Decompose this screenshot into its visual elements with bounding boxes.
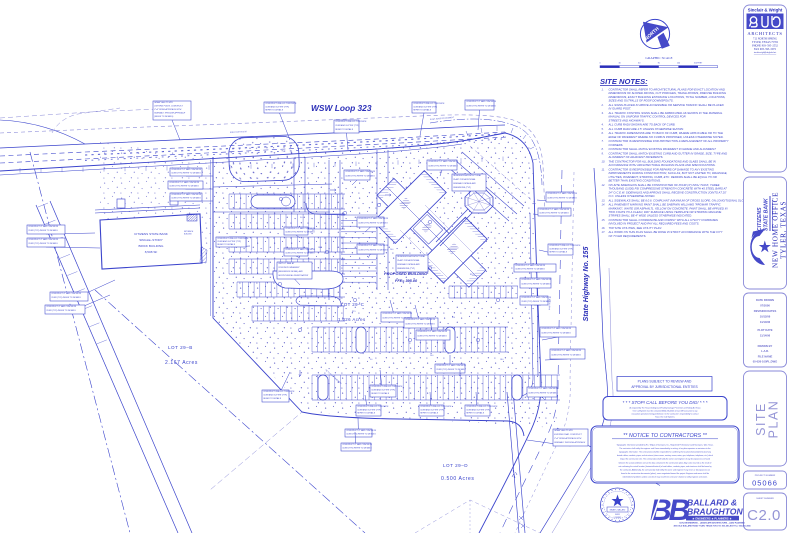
svg-text:LOT 29–D: LOT 29–D bbox=[443, 463, 468, 468]
svg-text:STATE BANK: STATE BANK bbox=[764, 197, 770, 231]
svg-text:CONSTRUCT BXA LLC CONCRETE: CONSTRUCT BXA LLC CONCRETE bbox=[263, 390, 295, 393]
svg-text:CITIZENS: CITIZENS bbox=[757, 207, 763, 231]
svg-text:sinclairwright@sbcglobal.net: sinclairwright@sbcglobal.net bbox=[754, 51, 777, 54]
svg-text:84835: 84835 bbox=[615, 514, 620, 516]
svg-text:REFER TO DETAILS: REFER TO DETAILS bbox=[357, 411, 376, 414]
svg-text:CONSTRUCT 6″ MAX CONCRETE: CONSTRUCT 6″ MAX CONCRETE bbox=[171, 193, 202, 196]
svg-text:CURB (TYP.) REFER TO DETAILS: CURB (TYP.) REFER TO DETAILS bbox=[436, 368, 466, 371]
svg-text:LOT 29–B: LOT 29–B bbox=[168, 345, 193, 350]
svg-text:SHEET NUMBER: SHEET NUMBER bbox=[756, 498, 774, 500]
svg-text:the contractor. Additionally,: the contractor. Additionally, the contra… bbox=[620, 468, 710, 471]
svg-text:2″x3″ DRIVE APPROACH WITH: 2″x3″ DRIVE APPROACH WITH bbox=[153, 108, 182, 111]
svg-text:R10: R10 bbox=[452, 317, 455, 319]
svg-text:12.: 12. bbox=[602, 183, 606, 187]
svg-text:CONSTRUCT BXA LLC CONCRETE: CONSTRUCT BXA LLC CONCRETE bbox=[265, 102, 297, 105]
svg-text:FFE= 395.00: FFE= 395.00 bbox=[395, 279, 418, 283]
svg-text:DATE DRAWN: DATE DRAWN bbox=[756, 298, 774, 302]
svg-text:CONSTRUCT 6″ MAX CONCRETE: CONSTRUCT 6″ MAX CONCRETE bbox=[551, 349, 582, 352]
svg-text:CONSTRUCT 6″ MAX CONCRETE: CONSTRUCT 6″ MAX CONCRETE bbox=[466, 100, 497, 103]
svg-text:State Highway No. 155: State Highway No. 155 bbox=[583, 247, 590, 322]
svg-text:CONSTRUCT BXA LLC CONCRETE: CONSTRUCT BXA LLC CONCRETE bbox=[466, 405, 498, 408]
svg-text:R2.5: R2.5 bbox=[470, 274, 474, 276]
svg-text:LIGHTING POLES. CONSTRUCT: LIGHTING POLES. CONSTRUCT bbox=[154, 106, 184, 108]
svg-text:6.: 6. bbox=[602, 131, 604, 135]
svg-text:CURB (TYP.) REFER TO DETAILS: CURB (TYP.) REFER TO DETAILS bbox=[28, 242, 58, 245]
svg-text:9.0: 9.0 bbox=[300, 217, 302, 219]
svg-text:CURB (TYP.) REFER TO DETAILS: CURB (TYP.) REFER TO DETAILS bbox=[51, 296, 81, 299]
svg-text:0.500 Acres: 0.500 Acres bbox=[441, 476, 475, 482]
svg-text:CURB AND GUTTER (TYP.): CURB AND GUTTER (TYP.) bbox=[413, 105, 437, 108]
svg-text:OF TYLER REQUIREMENTS.: OF TYLER REQUIREMENTS. bbox=[609, 234, 647, 238]
svg-text:150 FEET: 150 FEET bbox=[694, 63, 703, 65]
svg-text:9.0: 9.0 bbox=[370, 359, 372, 361]
svg-text:CURB (TYP.) REFER TO DETAILS: CURB (TYP.) REFER TO DETAILS bbox=[541, 331, 571, 334]
svg-text:PLANT FOR ADDITIONAL: PLANT FOR ADDITIONAL bbox=[453, 178, 475, 181]
svg-text:CURB (TYP.) REFER TO DETAILS: CURB (TYP.) REFER TO DETAILS bbox=[417, 334, 447, 337]
svg-text:CURB AND GUTTER (TYP.): CURB AND GUTTER (TYP.) bbox=[335, 124, 359, 127]
svg-text:found in the construction docu: found in the construction documents (pla… bbox=[621, 472, 709, 475]
svg-text:CONSTRUCT BXA LLC CONCRETE: CONSTRUCT BXA LLC CONCRETE bbox=[549, 244, 581, 247]
svg-text:REFER TO DETAILS: REFER TO DETAILS bbox=[549, 250, 568, 253]
svg-text:REFERENCE ARCHITECTURAL: REFERENCE ARCHITECTURAL bbox=[453, 174, 481, 177]
svg-text:EXIST R.O.W.: EXIST R.O.W. bbox=[549, 298, 551, 310]
svg-text:CURB (TYP.) REFER TO DETAILS: CURB (TYP.) REFER TO DETAILS bbox=[358, 221, 388, 224]
svg-text:Texas One Call Systems.: Texas One Call Systems. bbox=[655, 416, 676, 419]
svg-text:CONSTRUCT BXA LLC CONCRETE: CONSTRUCT BXA LLC CONCRETE bbox=[335, 120, 367, 123]
svg-text:L.A.R.: L.A.R. bbox=[761, 349, 769, 353]
svg-text:13.: 13. bbox=[602, 198, 606, 202]
svg-text:CURB (TYP.) REFER TO DETAILS: CURB (TYP.) REFER TO DETAILS bbox=[547, 196, 577, 199]
svg-text:CURB (TYP.) REFER TO DETAILS: CURB (TYP.) REFER TO DETAILS bbox=[515, 267, 545, 270]
svg-text:CURB AND GUTTER (TYP.): CURB AND GUTTER (TYP.) bbox=[217, 240, 241, 243]
svg-text:CURB (TYP.) REFER TO DETAILS: CURB (TYP.) REFER TO DETAILS bbox=[46, 309, 76, 312]
svg-text:11.: 11. bbox=[602, 167, 606, 171]
svg-text:CITIZENS STATE BANK: CITIZENS STATE BANK bbox=[134, 232, 169, 236]
svg-text:8,508 SF: 8,508 SF bbox=[145, 250, 158, 254]
svg-text:DIMENSIONS (TYP.): DIMENSIONS (TYP.) bbox=[453, 187, 471, 189]
svg-text:CURB (TYP.) REFER TO DETAILS: CURB (TYP.) REFER TO DETAILS bbox=[521, 282, 551, 285]
svg-text:CONSTRUCT 6″ MAX CONCRETE: CONSTRUCT 6″ MAX CONCRETE bbox=[539, 208, 570, 211]
svg-text:CURB (TYP.) REFER TO DETAILS: CURB (TYP.) REFER TO DETAILS bbox=[285, 251, 315, 254]
svg-text:1.: 1. bbox=[602, 88, 604, 92]
svg-text:CONSTRUCT 6″ MAX CONCRETE: CONSTRUCT 6″ MAX CONCRETE bbox=[515, 264, 546, 267]
svg-text:10/12/06: 10/12/06 bbox=[760, 315, 771, 319]
svg-text:CONCRETE PAVEMENT: CONCRETE PAVEMENT bbox=[278, 266, 300, 269]
svg-text:R2.5: R2.5 bbox=[352, 311, 356, 313]
svg-text:0: 0 bbox=[599, 63, 600, 65]
svg-text:CONSTRUCT 6″ MAX CONCRETE: CONSTRUCT 6″ MAX CONCRETE bbox=[358, 217, 389, 220]
svg-text:11/14/06: 11/14/06 bbox=[760, 320, 771, 324]
svg-text:LICENSED: LICENSED bbox=[614, 517, 622, 519]
svg-text:CONSTRUCT 6″ MAX CONCRETE: CONSTRUCT 6″ MAX CONCRETE bbox=[521, 296, 552, 299]
svg-text:SINGLE–STORY: SINGLE–STORY bbox=[139, 238, 163, 242]
svg-text:The contractor shall notify th: The contractor shall notify the engineer… bbox=[619, 447, 710, 450]
svg-text:CURB AND GUTTER (TYP.): CURB AND GUTTER (TYP.) bbox=[466, 408, 490, 411]
svg-text:CONSTRUCT 6″ MAX CONCRETE: CONSTRUCT 6″ MAX CONCRETE bbox=[28, 238, 59, 241]
svg-text:DRAWN BY: DRAWN BY bbox=[758, 344, 773, 348]
svg-text:** NOTICE TO CONTRACTORS: ** NOTICE TO CONTRACTORS ** bbox=[623, 433, 708, 439]
svg-text:9.0: 9.0 bbox=[312, 230, 314, 232]
svg-text:CONSTRUCT 6″ MAX CONCRETE: CONSTRUCT 6″ MAX CONCRETE bbox=[46, 305, 77, 308]
svg-text:30: 30 bbox=[619, 63, 621, 65]
svg-text:FAX 903–595–5972: FAX 903–595–5972 bbox=[754, 48, 777, 51]
svg-text:impact the construction site.: impact the construction site. The contra… bbox=[620, 458, 710, 461]
svg-text:BRICK BUILDING: BRICK BUILDING bbox=[139, 244, 165, 248]
svg-text:CONSTRUCT 6″ MAX CONCRETE: CONSTRUCT 6″ MAX CONCRETE bbox=[528, 387, 559, 390]
svg-text:15.: 15. bbox=[602, 218, 606, 222]
svg-text:EXISTING ROAD. CONSTRUCT: EXISTING ROAD. CONSTRUCT bbox=[554, 433, 583, 436]
svg-text:CONSTRUCT 6″ MAX CONCRETE: CONSTRUCT 6″ MAX CONCRETE bbox=[169, 181, 200, 184]
svg-text:CURB (TYP.) REFER TO DETAILS: CURB (TYP.) REFER TO DETAILS bbox=[169, 184, 199, 187]
svg-text:CURB (TYP.) REFER TO DETAILS: CURB (TYP.) REFER TO DETAILS bbox=[345, 174, 375, 177]
svg-text:CONSTRUCT 6″ MAX CONCRETE: CONSTRUCT 6″ MAX CONCRETE bbox=[171, 168, 202, 171]
svg-text:18.0: 18.0 bbox=[500, 359, 503, 361]
svg-text:SITE NOTES:: SITE NOTES: bbox=[600, 77, 648, 86]
svg-text:16.: 16. bbox=[602, 226, 606, 230]
svg-text:CURB (TYP.) REFER TO DETAILS: CURB (TYP.) REFER TO DETAILS bbox=[358, 248, 388, 251]
svg-text:2″x3″ DRIVE APPROACH WITH: 2″x3″ DRIVE APPROACH WITH bbox=[553, 437, 582, 440]
svg-text:3.: 3. bbox=[602, 111, 604, 115]
svg-text:Sinclair & Wright: Sinclair & Wright bbox=[748, 8, 783, 13]
svg-text:14.: 14. bbox=[602, 203, 606, 207]
svg-text:07/2006: 07/2006 bbox=[760, 304, 770, 308]
svg-text:CURB (TYP.) REFER TO DETAILS: CURB (TYP.) REFER TO DETAILS bbox=[28, 229, 58, 232]
svg-text:Topographic information provid: Topographic information provided by R.L.… bbox=[617, 444, 714, 447]
svg-text:LOT 29–C: LOT 29–C bbox=[341, 302, 364, 307]
svg-text:CONSTRUCT 6″ MAX CONCRETE: CONSTRUCT 6″ MAX CONCRETE bbox=[521, 278, 552, 281]
svg-text:05-026-100PL.DWG: 05-026-100PL.DWG bbox=[753, 360, 778, 364]
svg-text:GEOTECHNICAL INVESTIGATION: GEOTECHNICAL INVESTIGATION bbox=[278, 274, 309, 277]
svg-text:CONSTRUCT 6″ MAX CONCRETE: CONSTRUCT 6″ MAX CONCRETE bbox=[358, 244, 389, 247]
svg-text:(REFERENCE DETAIL) AND: (REFERENCE DETAIL) AND bbox=[278, 270, 303, 273]
svg-text:★ ENGINEERS ★ PLANNERS ★: ★ ENGINEERS ★ PLANNERS ★ bbox=[692, 516, 732, 520]
svg-text:2.167 Acres: 2.167 Acres bbox=[165, 360, 198, 366]
svg-text:BRIAN K. BALLARD: BRIAN K. BALLARD bbox=[610, 509, 626, 512]
svg-text:topographic information. The: topographic information. The contractor(… bbox=[619, 451, 711, 454]
svg-text:60: 60 bbox=[638, 63, 640, 65]
svg-text:REFER TO DETAILS: REFER TO DETAILS bbox=[466, 411, 485, 414]
svg-text:NEW HOME OFFICE: NEW HOME OFFICE bbox=[772, 192, 780, 268]
svg-text:CURB (TYP.) REFER TO DETAILS: CURB (TYP.) REFER TO DETAILS bbox=[528, 391, 558, 394]
svg-text:REFER TO DETAILS: REFER TO DETAILS bbox=[420, 411, 439, 414]
svg-text:90: 90 bbox=[658, 63, 660, 65]
svg-text:CONSTRUCT BXA LLC CONCRETE: CONSTRUCT BXA LLC CONCRETE bbox=[420, 405, 452, 408]
svg-text:SET BENCH: SET BENCH bbox=[184, 231, 194, 233]
svg-text:CONSTRUCT 6″ MAX CONCRETE: CONSTRUCT 6″ MAX CONCRETE bbox=[382, 312, 413, 315]
svg-text:CONSTRUCT 6″ MAX CONCRETE: CONSTRUCT 6″ MAX CONCRETE bbox=[405, 318, 436, 321]
svg-text:CONSTRUCT BXA LLC CONCRETE: CONSTRUCT BXA LLC CONCRETE bbox=[357, 405, 389, 408]
svg-text:TYLER, TEXAS: TYLER, TEXAS bbox=[780, 201, 788, 259]
svg-text:10.: 10. bbox=[602, 159, 606, 163]
svg-text:9.: 9. bbox=[602, 151, 604, 155]
svg-text:CONSTRUCT 6″ MAX CONCRETE: CONSTRUCT 6″ MAX CONCRETE bbox=[417, 330, 448, 333]
svg-text:GREAT LAG TO SITE: GREAT LAG TO SITE bbox=[154, 101, 173, 104]
svg-text:excavation operations being pe: excavation operations being performed, i… bbox=[631, 413, 699, 416]
svg-text:CONSTRUCT 6″ MAX CONCRETE: CONSTRUCT 6″ MAX CONCRETE bbox=[51, 292, 82, 295]
svg-text:indemnified of problems and/or: indemnified of problems and/or cost whic… bbox=[622, 475, 708, 478]
svg-text:CONSTRUCT 6″ MAX CONCRETE: CONSTRUCT 6″ MAX CONCRETE bbox=[436, 364, 467, 367]
svg-text:CURB (TYP.) REFER TO DETAILS: CURB (TYP.) REFER TO DETAILS bbox=[346, 432, 376, 435]
svg-text:5.: 5. bbox=[602, 127, 604, 131]
svg-text:CONSTRUCT BXA LLC CONCRETE: CONSTRUCT BXA LLC CONCRETE bbox=[371, 385, 403, 388]
svg-text:CURB AND GUTTER (TYP.): CURB AND GUTTER (TYP.) bbox=[420, 408, 444, 411]
svg-text:One Call System must be contac: One Call System must be contacted (800) … bbox=[633, 410, 698, 413]
svg-text:CIVIL ENGINEERING – LANDSCAPE: CIVIL ENGINEERING – LANDSCAPE ARCHITECTU… bbox=[679, 521, 745, 524]
svg-text:CONSTRUCT 6″ MAX CONCRETE: CONSTRUCT 6″ MAX CONCRETE bbox=[547, 192, 578, 195]
svg-text:24.0: 24.0 bbox=[430, 355, 433, 357]
svg-text:GREAT LAG TO SITE: GREAT LAG TO SITE bbox=[554, 429, 573, 432]
svg-text:CURB (TYP.) REFER TO DETAILS: CURB (TYP.) REFER TO DETAILS bbox=[342, 446, 372, 449]
svg-text:3810 OLD BULLARD ROAD TYLER, T: 3810 OLD BULLARD ROAD TYLER, TEXAS 75701… bbox=[673, 525, 750, 528]
svg-text:05066: 05066 bbox=[752, 479, 778, 488]
svg-text:CONSTRUCT 6″ MAX CONCRETE: CONSTRUCT 6″ MAX CONCRETE bbox=[345, 170, 376, 173]
svg-text:SIDEWALK THROUGH APPROACH: SIDEWALK THROUGH APPROACH bbox=[154, 112, 186, 115]
svg-text:CURB AND GUTTER (TYP.): CURB AND GUTTER (TYP.) bbox=[371, 389, 395, 392]
svg-text:1.026 Acres: 1.026 Acres bbox=[338, 317, 366, 322]
svg-text:SIDEWALK DETAILS AND: SIDEWALK DETAILS AND bbox=[397, 263, 420, 266]
svg-text:OMIT LIT SEAL AT: OMIT LIT SEAL AT bbox=[278, 262, 295, 265]
svg-text:WSW Loop 323: WSW Loop 323 bbox=[311, 103, 372, 113]
svg-text:CONSTRUCT BXA LLC CONCRETE: CONSTRUCT BXA LLC CONCRETE bbox=[217, 237, 249, 240]
svg-text:CONSTRUCT 6″ MAX CONCRETE: CONSTRUCT 6″ MAX CONCRETE bbox=[285, 248, 316, 251]
svg-text:REFER TO DETAILS: REFER TO DETAILS bbox=[335, 128, 354, 131]
svg-text:CURB (TYP.) REFER TO DETAILS: CURB (TYP.) REFER TO DETAILS bbox=[285, 230, 315, 233]
svg-text:CURB (TYP.) REFER TO DETAILS: CURB (TYP.) REFER TO DETAILS bbox=[551, 353, 581, 356]
svg-text:not confirming the actual loca: not confirming the actual location (hori… bbox=[619, 465, 712, 468]
svg-text:As required by The Texas Under: As required by The Texas Underground Fac… bbox=[629, 407, 700, 410]
svg-text:CURB (TYP.) REFER TO DETAILS: CURB (TYP.) REFER TO DETAILS bbox=[466, 104, 496, 107]
svg-text:PLAN: PLAN bbox=[767, 400, 781, 439]
svg-text:8.: 8. bbox=[602, 147, 604, 151]
svg-text:PLANT FOR ADDITIONAL: PLANT FOR ADDITIONAL bbox=[397, 259, 419, 262]
svg-text:CONSTRUCT 6″ MAX CONCRETE: CONSTRUCT 6″ MAX CONCRETE bbox=[346, 429, 377, 432]
svg-text:CURB AND GUTTER (TYP.): CURB AND GUTTER (TYP.) bbox=[549, 247, 573, 250]
svg-text:4.: 4. bbox=[602, 123, 604, 127]
svg-text:REFER TO DETAILS: REFER TO DETAILS bbox=[263, 397, 282, 400]
svg-text:REFER TO DETAILS: REFER TO DETAILS bbox=[413, 108, 432, 111]
svg-text:24.0: 24.0 bbox=[390, 249, 393, 251]
svg-text:CONSTRUCT 6″ MAX CONCRETE: CONSTRUCT 6″ MAX CONCRETE bbox=[28, 225, 59, 228]
svg-text:REFER TO DETAILS: REFER TO DETAILS bbox=[265, 108, 284, 111]
svg-text:CONSTRUCT 6″ MAX CONCRETE: CONSTRUCT 6″ MAX CONCRETE bbox=[428, 160, 459, 163]
svg-text:APPROVAL BY JURISDICTIONAL ENT: APPROVAL BY JURISDICTIONAL ENTITIES bbox=[631, 385, 698, 389]
svg-text:CURB (TYP.) REFER TO DETAILS: CURB (TYP.) REFER TO DETAILS bbox=[428, 164, 458, 167]
svg-text:CONSTRUCT 6″ MAX CONCRETE: CONSTRUCT 6″ MAX CONCRETE bbox=[541, 327, 572, 330]
svg-text:CURB AND GUTTER (TYP.): CURB AND GUTTER (TYP.) bbox=[265, 105, 289, 108]
svg-text:120: 120 bbox=[677, 63, 680, 65]
svg-text:SIDEWALK DETAILS AND: SIDEWALK DETAILS AND bbox=[453, 182, 476, 185]
svg-text:between the actual conditions: between the actual conditions versus the… bbox=[619, 461, 712, 464]
svg-text:CONTRACTOR IS RESPONSIBLE FOR: CONTRACTOR IS RESPONSIBLE FOR PROTECTION… bbox=[609, 139, 730, 143]
svg-text:CURB AND GUTTER (TYP.): CURB AND GUTTER (TYP.) bbox=[263, 394, 287, 397]
svg-text:ARCHITECTS: ARCHITECTS bbox=[747, 31, 782, 36]
svg-text:REFER TO DETAILS: REFER TO DETAILS bbox=[371, 392, 390, 395]
svg-text:CONSTRUCT BXA LLC CONCRETE: CONSTRUCT BXA LLC CONCRETE bbox=[413, 102, 445, 105]
svg-text:7.: 7. bbox=[602, 139, 604, 143]
svg-text:2.: 2. bbox=[601, 103, 604, 107]
svg-text:SIDEWALK THROUGH APPROACH: SIDEWALK THROUGH APPROACH bbox=[554, 441, 586, 444]
svg-text:REFERENCE ARCHITECTURAL: REFERENCE ARCHITECTURAL bbox=[397, 255, 425, 258]
svg-text:PROJECT NUMBER: PROJECT NUMBER bbox=[755, 475, 776, 477]
svg-text:CONSTRUCT 6″ MAX CONCRETE: CONSTRUCT 6″ MAX CONCRETE bbox=[342, 443, 373, 446]
svg-text:CURB (TYP.) REFER TO DETAILS: CURB (TYP.) REFER TO DETAILS bbox=[171, 196, 201, 199]
svg-text:CURB (TYP.) REFER TO DETAILS: CURB (TYP.) REFER TO DETAILS bbox=[171, 171, 201, 174]
svg-text:17.: 17. bbox=[602, 230, 606, 234]
svg-text:DIMENSIONS (TYP.): DIMENSIONS (TYP.) bbox=[397, 268, 415, 270]
svg-text:REVISION DATES: REVISION DATES bbox=[754, 309, 777, 313]
svg-text:C2.0: C2.0 bbox=[747, 507, 781, 524]
svg-text:buried cables, conduits, pipes: buried cables, conduits, pipes, and stru… bbox=[617, 454, 713, 457]
svg-text:GRAPHIC SCALE: GRAPHIC SCALE bbox=[645, 56, 672, 60]
svg-text:CURB (TYP.) REFER TO DETAILS: CURB (TYP.) REFER TO DETAILS bbox=[539, 211, 569, 214]
svg-text:PLANS SUBJECT TO REVIEW AND: PLANS SUBJECT TO REVIEW AND bbox=[638, 380, 692, 384]
svg-text:FILE NAME: FILE NAME bbox=[758, 355, 773, 359]
svg-text:* * * STOP! CALL BEFORE: * * * STOP! CALL BEFORE YOU DIG! * * * bbox=[622, 400, 707, 405]
svg-text:CURB AND GUTTER (TYP.): CURB AND GUTTER (TYP.) bbox=[357, 408, 381, 411]
svg-text:BUILDING: BUILDING bbox=[184, 234, 192, 236]
svg-text:BRAUGHTON: BRAUGHTON bbox=[687, 507, 743, 517]
svg-text:PLOT DATE: PLOT DATE bbox=[757, 328, 772, 332]
svg-text:REFER TO DETAILS: REFER TO DETAILS bbox=[217, 243, 236, 246]
svg-text:CURB (TYP.) REFER TO DETAILS: CURB (TYP.) REFER TO DETAILS bbox=[521, 300, 551, 303]
svg-text:18.0: 18.0 bbox=[318, 247, 321, 249]
svg-text:11/14/06: 11/14/06 bbox=[760, 334, 771, 338]
svg-text:(REFER TO DETAILS): (REFER TO DETAILS) bbox=[154, 115, 173, 118]
